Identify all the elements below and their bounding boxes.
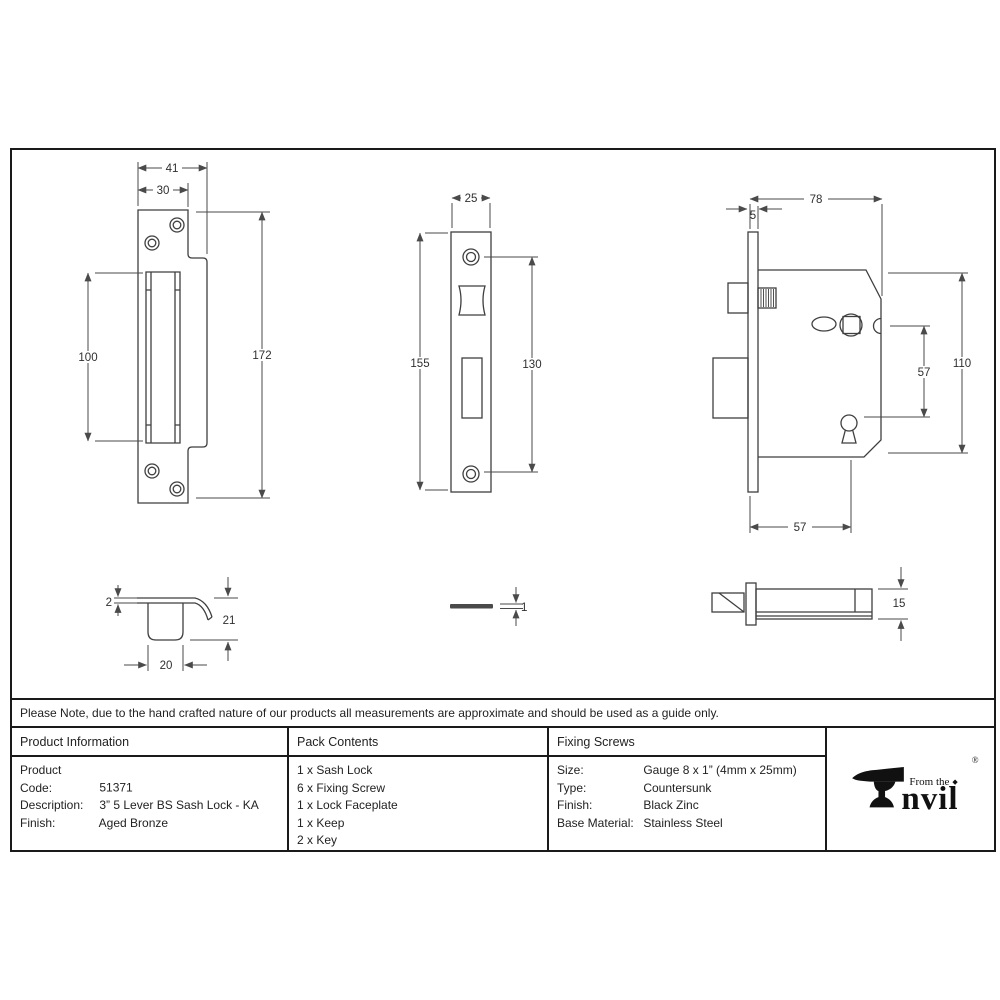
finish-label: Finish: [20, 815, 96, 833]
dim-lock-spindle-to-keyhole: 57 [918, 367, 931, 379]
dim-keep-slot-height: 100 [78, 352, 97, 364]
keep-front-drawing [138, 210, 207, 503]
product-code-value: 51371 [99, 781, 132, 795]
fixing-screws-header: Fixing Screws [549, 728, 825, 757]
info-table-section: Please Note, due to the hand crafted nat… [12, 698, 994, 850]
lock-body-side-drawing [713, 232, 881, 492]
pack-contents-column: Pack Contents 1 x Sash Lock 6 x Fixing S… [287, 728, 547, 850]
faceplate-front-dimensions [406, 192, 546, 490]
lock-body-side-dimensions [726, 193, 977, 533]
from-the-anvil-logo: From the ◆ nvil ® [852, 764, 968, 814]
anvil-icon [852, 767, 904, 814]
brand-name: nvil [901, 784, 958, 814]
finish-row: Finish: Aged Bronze [20, 815, 279, 833]
dim-keep-box-width: 20 [160, 660, 173, 672]
dim-lock-case-thickness: 15 [893, 598, 906, 610]
product-information-header: Product Information [12, 728, 287, 757]
screw-size-row: Size: Gauge 8 x 1” (4mm x 25mm) [557, 762, 817, 780]
dim-keep-inner-width: 30 [157, 185, 170, 197]
keep-profile-drawing [137, 598, 212, 640]
screw-type-value: Countersunk [643, 781, 711, 795]
faceplate-front-drawing [451, 232, 491, 492]
screw-size-label: Size: [557, 762, 640, 780]
pack-contents-header: Pack Contents [289, 728, 547, 757]
dim-lock-faceplate-thickness: 5 [750, 210, 756, 222]
screw-material-row: Base Material: Stainless Steel [557, 815, 817, 833]
lock-body-top-drawing [712, 583, 872, 625]
faceplate-profile-drawing [450, 604, 493, 609]
product-code-label: Product Code: [20, 762, 96, 797]
technical-drawings: 41 30 100 172 25 155 [12, 150, 994, 698]
registered-trademark: ® [972, 755, 979, 765]
screw-material-label: Base Material: [557, 815, 640, 833]
pack-item: 2 x Key [297, 832, 539, 850]
dim-lock-case-depth: 78 [810, 194, 823, 206]
pack-item: 6 x Fixing Screw [297, 780, 539, 798]
measurement-note: Please Note, due to the hand crafted nat… [12, 698, 994, 728]
dim-faceplate-height: 155 [410, 358, 429, 370]
description-row: Description: 3” 5 Lever BS Sash Lock - K… [20, 797, 279, 815]
screw-size-value: Gauge 8 x 1” (4mm x 25mm) [643, 763, 796, 777]
screw-type-label: Type: [557, 780, 640, 798]
keep-profile-dimensions [114, 577, 238, 671]
drawing-frame: 41 30 100 172 25 155 [10, 148, 996, 852]
faceplate-profile-dimensions [500, 587, 523, 626]
dim-keep-plate-thickness: 2 [106, 597, 112, 609]
pack-item: 1 x Keep [297, 815, 539, 833]
screw-finish-row: Finish: Black Zinc [557, 797, 817, 815]
dim-faceplate-thickness: 1 [521, 602, 527, 614]
dim-lock-case-height: 110 [953, 358, 971, 370]
product-information-column: Product Information Product Code: 51371 … [12, 728, 287, 850]
screw-type-row: Type: Countersunk [557, 780, 817, 798]
dim-keep-box-depth: 21 [223, 615, 236, 627]
dim-keep-outer-width: 41 [166, 163, 179, 175]
description-value: 3” 5 Lever BS Sash Lock - KA [99, 798, 258, 812]
dim-keep-plate-height: 172 [252, 350, 271, 362]
finish-value: Aged Bronze [99, 816, 168, 830]
pack-item: 1 x Lock Faceplate [297, 797, 539, 815]
screw-material-value: Stainless Steel [643, 816, 722, 830]
product-spec-sheet: 41 30 100 172 25 155 [0, 0, 1000, 1000]
dim-faceplate-hole-spacing: 130 [522, 359, 541, 371]
dim-lock-backset: 57 [794, 522, 807, 534]
screw-finish-value: Black Zinc [643, 798, 698, 812]
brand-logo-cell: From the ◆ nvil ® [825, 728, 994, 850]
dim-faceplate-width: 25 [465, 193, 478, 205]
pack-item: 1 x Sash Lock [297, 762, 539, 780]
description-label: Description: [20, 797, 96, 815]
product-table: Product Information Product Code: 51371 … [12, 728, 994, 850]
fixing-screws-column: Fixing Screws Size: Gauge 8 x 1” (4mm x … [547, 728, 825, 850]
product-code-row: Product Code: 51371 [20, 762, 279, 797]
screw-finish-label: Finish: [557, 797, 640, 815]
